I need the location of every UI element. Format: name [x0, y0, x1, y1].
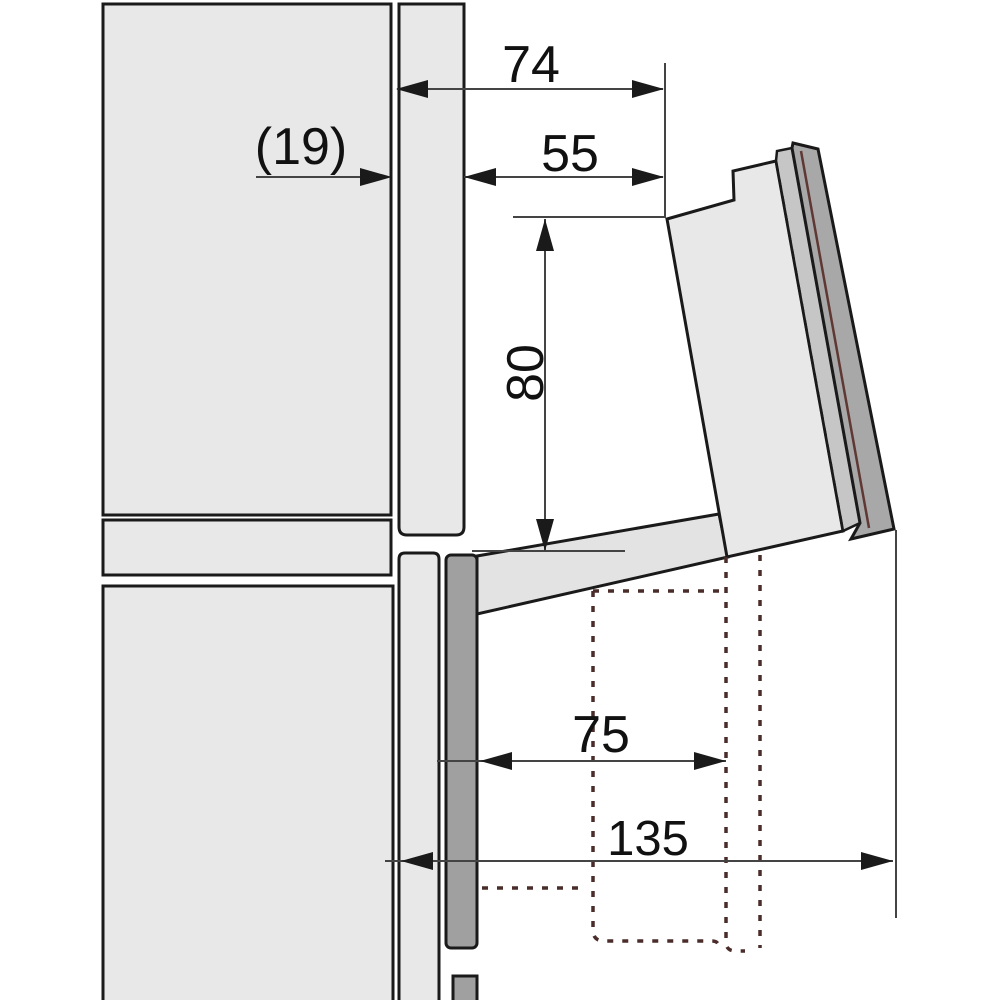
appliance-bottom-edge [453, 976, 477, 1000]
door-swing-arm [477, 514, 728, 614]
dimension-75-label: 75 [572, 706, 630, 764]
lower-cabinet-side-panel [103, 586, 393, 1000]
arrow-55-left [464, 168, 496, 186]
dimension-80-label: 80 [497, 344, 555, 402]
dimension-74-label: 74 [502, 36, 560, 94]
upper-cabinet-side-panel [103, 4, 391, 515]
arrow-75-left [480, 752, 512, 770]
arrow-75-right [694, 752, 726, 770]
upper-furniture-front [399, 4, 464, 535]
diagram-canvas: 74 (19) 55 80 75 135 [0, 0, 1000, 1000]
appliance-front-strip [446, 555, 477, 948]
hidden-outline-door-inner [726, 557, 745, 951]
installation-dimension-diagram: 74 (19) 55 80 75 135 [0, 0, 1000, 1000]
arrow-80-up [536, 219, 554, 251]
dimension-55-label: 55 [541, 125, 599, 183]
arrow-135-right [861, 852, 893, 870]
hidden-outline-left [593, 591, 719, 948]
arrow-55-right [632, 168, 664, 186]
arrow-74-right [632, 80, 664, 98]
shelf-board [103, 520, 391, 575]
dimension-19-label: (19) [255, 118, 347, 176]
dimension-135-label: 135 [607, 812, 689, 866]
lower-furniture-front [399, 553, 439, 1000]
